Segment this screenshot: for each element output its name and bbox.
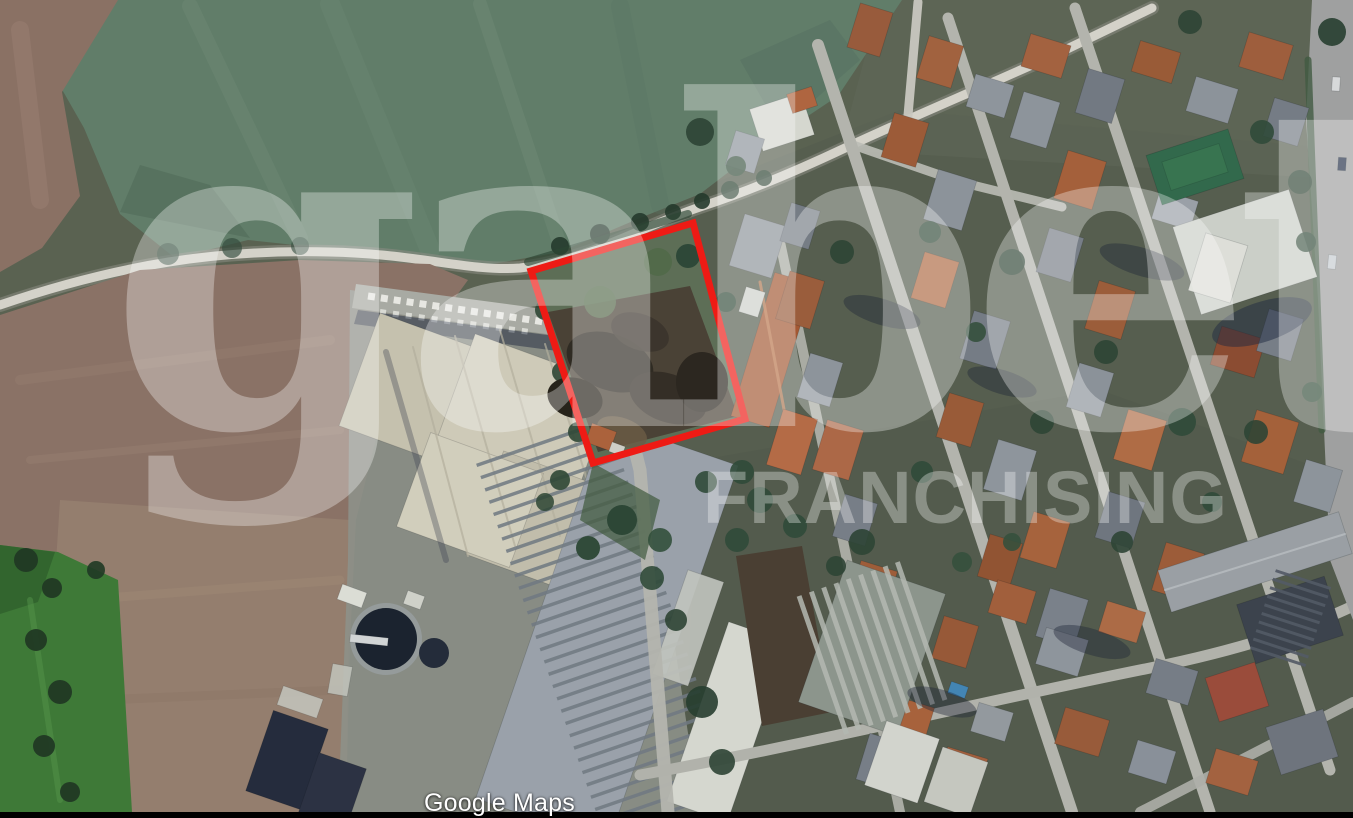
google-maps-attribution[interactable]: Google Maps [424, 789, 575, 818]
satellite-terrain [0, 0, 1353, 812]
map-viewport[interactable] [0, 0, 1353, 812]
satellite-canvas[interactable] [0, 0, 1353, 812]
